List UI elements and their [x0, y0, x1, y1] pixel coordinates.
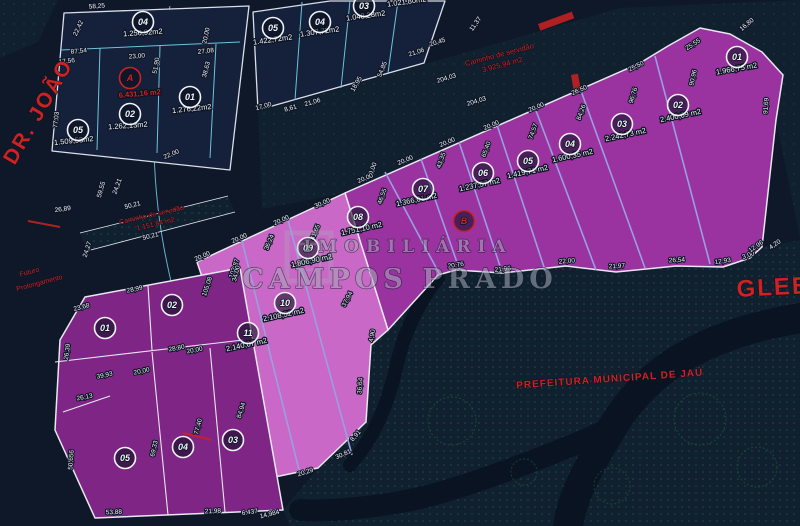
cad-drawing[interactable]: 58,2522,4287,5417,5623,0051,9077,0322,00…: [0, 0, 800, 526]
dim-label: 50,656: [67, 449, 75, 470]
lot-badge-number: 03: [617, 119, 627, 129]
dim-label: 23,00: [129, 52, 146, 60]
lot-badge-number: 05: [523, 156, 534, 166]
lot-badge-number: 04: [315, 17, 325, 27]
lot-badge-number: 04: [178, 442, 188, 452]
dim-label: 58,25: [89, 2, 106, 10]
lot-badge-number: 03: [359, 1, 369, 11]
lot-badge-number: B: [461, 216, 468, 226]
lot-badge-number: 01: [732, 52, 742, 62]
lot-badge-number: 04: [565, 139, 575, 149]
lot-badge-number: 04: [138, 17, 148, 27]
lot-badge-number: 07: [418, 184, 429, 194]
dim-label: 26,54: [669, 257, 686, 265]
dim-label: 36,64: [356, 377, 364, 394]
lot-badge-number: 10: [280, 298, 290, 308]
label-gleba-a: GLEBA A: [736, 270, 800, 303]
lot-badge-number: 02: [167, 300, 177, 310]
lot-badge-number: 11: [243, 328, 252, 338]
watermark-text: IMOBILIÁRIA: [303, 236, 512, 257]
lot-badge-number: 08: [353, 212, 363, 222]
lot-badge-number: 02: [125, 109, 135, 119]
lot-badge-number: 03: [228, 435, 238, 445]
lot-badge-number: 05: [120, 453, 131, 463]
dim-label: 21,98: [205, 508, 222, 516]
lot-badge-number: A: [126, 73, 134, 83]
lot-badge-number: 01: [185, 92, 195, 102]
watermark-text: CAMPOS PRADO: [242, 264, 558, 295]
cad-viewport[interactable]: 58,2522,4287,5417,5623,0051,9077,0322,00…: [0, 0, 800, 526]
lot-badge-number: 05: [73, 125, 84, 135]
dim-label: 22,00: [558, 257, 575, 265]
lot-badge-number: 02: [673, 100, 683, 110]
dim-label: 53,88: [106, 509, 123, 517]
lot-badge-number: 06: [478, 168, 489, 178]
dim-label: 91,69: [762, 97, 770, 114]
dim-label: 21,97: [609, 263, 626, 271]
lot-badge-number: 01: [100, 323, 110, 333]
lot-badge-number: 05: [268, 23, 279, 33]
